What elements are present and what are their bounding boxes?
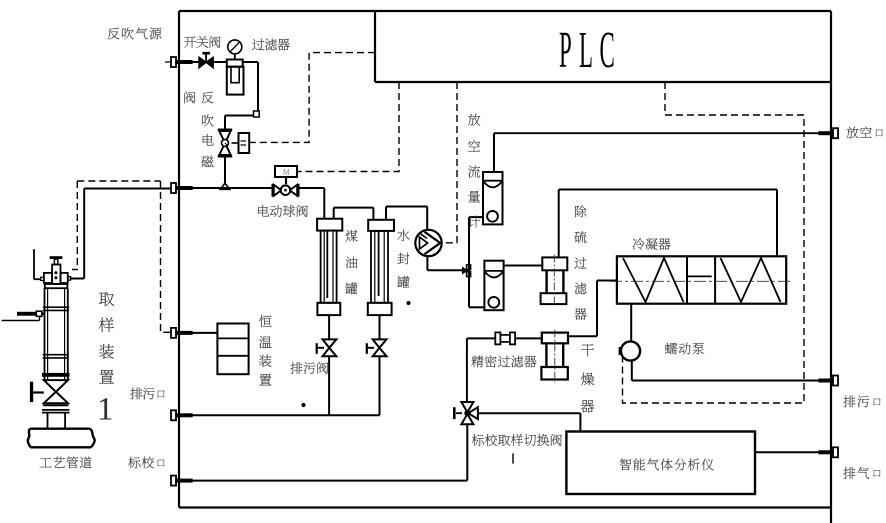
svg-text:M: M [283,168,290,177]
svg-text:1: 1 [97,392,114,428]
svg-text:L: L [579,20,593,78]
svg-text:C: C [600,20,615,78]
svg-text:P: P [559,20,572,78]
